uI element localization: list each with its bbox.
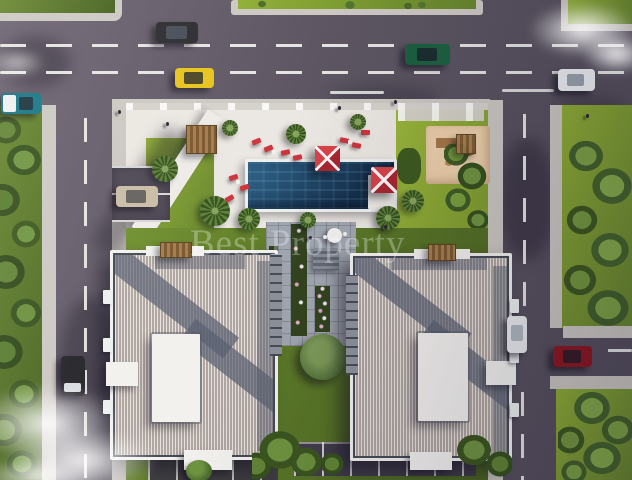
car-teal-suv [1, 93, 41, 114]
palm-tree [376, 206, 400, 230]
tree [186, 460, 212, 480]
pedestrian [309, 236, 312, 240]
lane-dashes-right-road [523, 114, 526, 328]
car-red-sedan [553, 346, 592, 367]
building-left-roof-pergola [160, 242, 192, 258]
car-green-sedan [405, 44, 450, 65]
grass-top-left [0, 0, 115, 13]
car-windows [511, 325, 523, 341]
roof-shaded-slope [493, 266, 507, 454]
side-table [348, 140, 352, 144]
palm-tree [152, 156, 178, 182]
car-yellow-hatchback [175, 68, 214, 88]
building-left-roof-terrace [152, 334, 200, 422]
building-right-roof-pergola [428, 244, 456, 261]
lane-dashes-top-row2 [0, 71, 632, 74]
road-edge-line [330, 91, 384, 94]
car-windows [567, 74, 584, 86]
pedestrian [394, 100, 397, 104]
building-left-west-terrace [106, 362, 138, 386]
pedestrian [384, 225, 387, 229]
cloud-wisp [582, 34, 632, 74]
palm-tree [238, 208, 260, 230]
car-windows [417, 48, 437, 61]
car-windows [184, 72, 203, 84]
sun-lounger [361, 130, 370, 135]
trees-bottom-building-right [452, 434, 512, 480]
road-edge-line [502, 89, 554, 92]
red-umbrella [371, 167, 397, 193]
palm-tree [222, 120, 238, 136]
table-chair [343, 232, 347, 236]
side-table [272, 150, 276, 154]
palm-tree [402, 190, 424, 212]
tree-shadow [498, 138, 556, 260]
cloud-wisp [0, 456, 100, 480]
balcony [510, 403, 519, 417]
flower-planter [315, 286, 330, 332]
palm-tree [286, 124, 306, 144]
building-right [350, 253, 512, 461]
car-dark-sedan [156, 22, 198, 43]
sidewalk-east-road-top [563, 326, 632, 338]
playground-pergola [398, 110, 484, 121]
trees-bottom-center [252, 428, 352, 480]
trees-playground [444, 144, 488, 234]
courtyard-stairs [313, 248, 339, 270]
table-chair [323, 235, 327, 239]
building-right-east-terrace [486, 361, 516, 385]
balcony [103, 290, 112, 304]
palm-tree [350, 114, 366, 130]
building-right-west-facade [346, 275, 358, 375]
car-windows [166, 26, 187, 39]
sidewalk-east-road-bottom [550, 376, 632, 389]
playground-hedge [397, 148, 421, 184]
trees-right-north [564, 108, 632, 328]
aerial-render: Best Property [0, 0, 632, 480]
pedestrian [586, 114, 589, 118]
car-windows [563, 350, 581, 363]
wooden-bench [456, 134, 476, 154]
car-roof [3, 95, 16, 112]
car-white-parked [507, 316, 527, 353]
pedestrian [118, 110, 121, 114]
palm-tree [300, 212, 316, 228]
pedestrian [338, 106, 341, 110]
cloud-wisp [0, 48, 46, 78]
pedestrian [166, 122, 169, 126]
building-right-roof-terrace [418, 333, 468, 421]
building-right-bottom-wing [410, 452, 452, 470]
median-bushes [240, 0, 476, 10]
lane-dashes-right-road-south [521, 392, 524, 480]
side-table [236, 180, 240, 184]
balcony [510, 299, 519, 313]
garden-tree [300, 334, 346, 380]
car-windows [19, 97, 33, 110]
trees-bottom-right [558, 392, 632, 480]
car-beige-parked [116, 186, 158, 207]
palm-tree [200, 196, 230, 226]
red-umbrella [315, 146, 340, 171]
building-left-east-facade [270, 254, 282, 356]
round-table [327, 228, 342, 243]
wooden-pergola [186, 125, 217, 154]
flower-planter [291, 224, 307, 336]
car-windows [126, 190, 146, 203]
balcony [103, 338, 112, 352]
